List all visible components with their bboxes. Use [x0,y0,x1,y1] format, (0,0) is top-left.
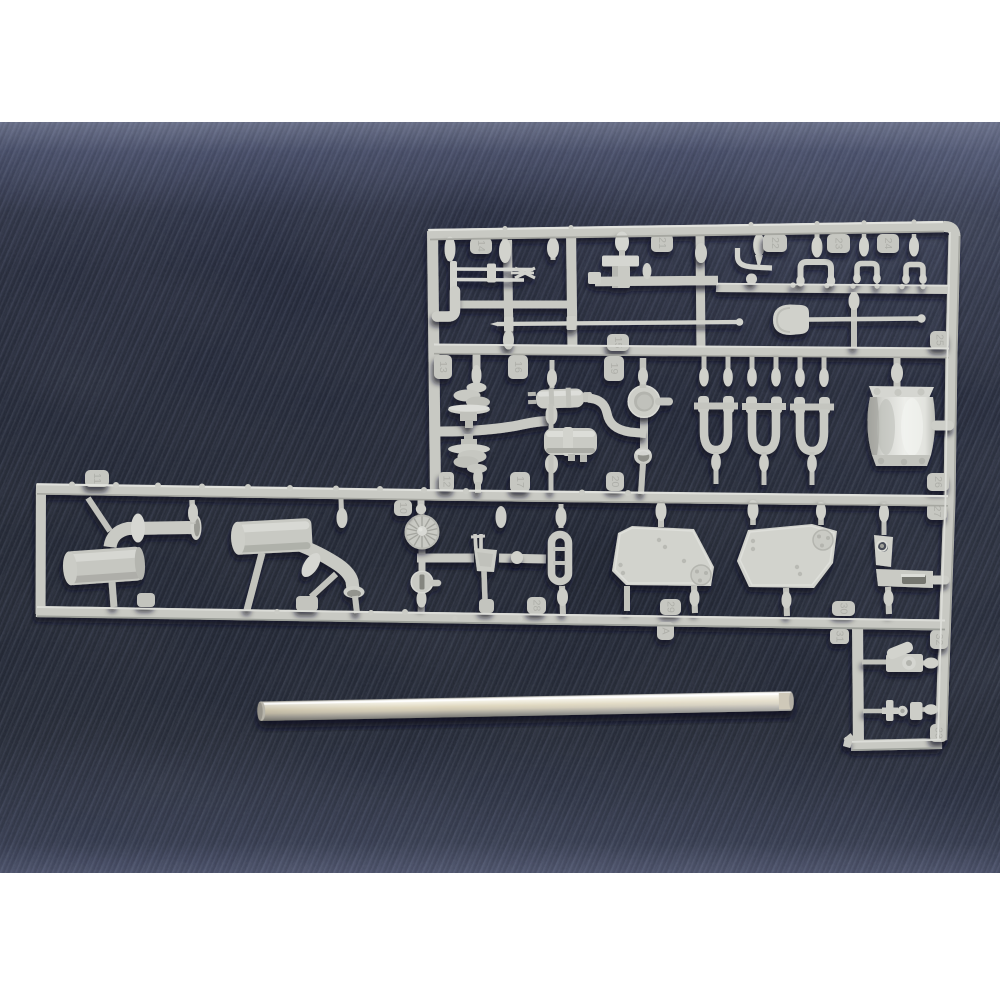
svg-text:25: 25 [934,334,946,346]
svg-text:30: 30 [838,603,850,615]
svg-text:A: A [660,627,672,634]
svg-text:24: 24 [882,238,894,250]
svg-text:13: 13 [437,361,449,373]
svg-text:31: 31 [834,631,846,643]
svg-text:28: 28 [531,600,543,612]
svg-text:32: 32 [933,634,945,646]
svg-text:10: 10 [397,502,409,514]
svg-text:19: 19 [608,363,620,375]
svg-text:22: 22 [769,237,781,249]
svg-text:23: 23 [833,238,845,250]
svg-text:11: 11 [91,473,103,484]
svg-text:12: 12 [441,476,453,488]
svg-text:21: 21 [656,237,668,249]
svg-text:27: 27 [931,506,943,518]
svg-text:20: 20 [609,476,621,488]
svg-text:14: 14 [475,240,487,252]
svg-text:17: 17 [514,476,526,488]
svg-text:16: 16 [512,361,524,373]
svg-text:29: 29 [665,601,677,613]
svg-text:26: 26 [932,476,944,488]
